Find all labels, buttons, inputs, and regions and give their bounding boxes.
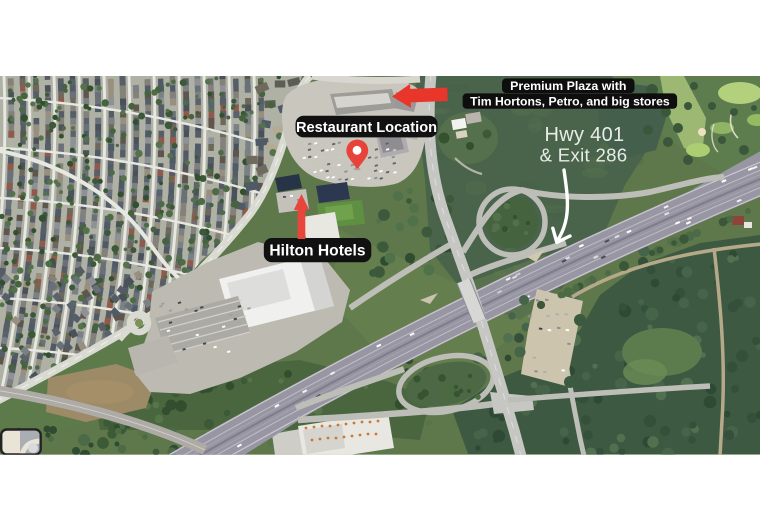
svg-text:& Exit 286: & Exit 286 xyxy=(540,145,628,166)
svg-text:Hilton Hotels: Hilton Hotels xyxy=(269,243,365,260)
svg-text:Tim Hortons, Petro, and big st: Tim Hortons, Petro, and big stores xyxy=(470,95,670,109)
svg-text:Restaurant Location: Restaurant Location xyxy=(296,120,437,136)
svg-text:Premium Plaza with: Premium Plaza with xyxy=(510,79,626,93)
svg-text:Hwy 401: Hwy 401 xyxy=(545,124,625,146)
